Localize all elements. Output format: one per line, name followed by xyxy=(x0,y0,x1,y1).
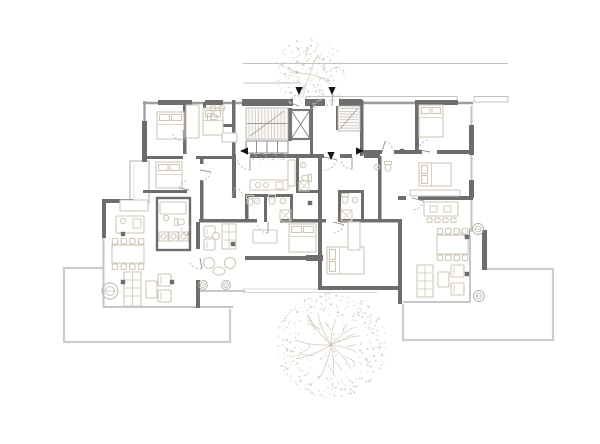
stool xyxy=(435,218,440,223)
chair xyxy=(462,229,468,235)
armchair xyxy=(158,274,171,286)
lounge-chair xyxy=(204,258,215,269)
casework xyxy=(146,281,157,298)
floor-plan xyxy=(0,0,600,444)
column-marker xyxy=(121,280,125,284)
lounge-chair xyxy=(225,258,236,269)
chair xyxy=(437,229,443,235)
column-marker xyxy=(231,242,235,246)
door-swing xyxy=(324,160,337,170)
entry-arrow-left xyxy=(295,87,302,95)
casework xyxy=(120,200,148,211)
chair xyxy=(130,239,136,245)
side-table xyxy=(213,267,225,275)
chair xyxy=(454,229,460,235)
toilet xyxy=(342,194,349,204)
casework xyxy=(348,222,360,250)
appliance xyxy=(159,232,168,241)
casework xyxy=(160,202,186,214)
side-table xyxy=(213,233,220,240)
dining-table xyxy=(112,245,144,263)
terrace-parapet xyxy=(64,268,230,342)
door-swing xyxy=(340,160,352,170)
column-marker xyxy=(308,201,312,205)
floor-plan-page xyxy=(0,0,600,444)
dining-table xyxy=(437,235,468,254)
door-swing xyxy=(412,201,423,210)
chair xyxy=(112,264,118,270)
chair xyxy=(446,255,452,261)
stool xyxy=(427,218,432,223)
casework xyxy=(253,230,277,243)
toilet xyxy=(175,219,185,226)
toilet xyxy=(302,175,312,182)
chair xyxy=(112,239,118,245)
stair-core xyxy=(246,106,360,153)
stool xyxy=(451,218,456,223)
armchair xyxy=(204,239,215,250)
tree-canopy-bottom xyxy=(277,292,387,398)
casework xyxy=(424,202,458,216)
appliance xyxy=(179,232,188,241)
casework xyxy=(222,133,237,142)
entry-arrow-right xyxy=(328,87,335,95)
stool xyxy=(443,218,448,223)
chair xyxy=(138,264,144,270)
apartment-entry-arrow-west xyxy=(240,147,248,154)
casework xyxy=(288,160,295,186)
column-marker xyxy=(400,149,404,153)
site-lines xyxy=(243,64,508,103)
door-swing xyxy=(418,140,427,149)
armchair xyxy=(451,265,464,277)
column-marker xyxy=(465,272,469,276)
chair xyxy=(121,264,127,270)
chair xyxy=(130,264,136,270)
door-swing xyxy=(190,263,202,269)
chair xyxy=(454,255,460,261)
door-swing xyxy=(333,225,344,233)
appliance xyxy=(169,232,178,241)
chair xyxy=(446,229,452,235)
chair xyxy=(437,255,443,261)
toilet xyxy=(385,162,392,172)
canopy-strip xyxy=(474,97,508,103)
armchair xyxy=(158,290,171,302)
casework xyxy=(410,190,460,196)
door-swing xyxy=(237,160,250,170)
chair xyxy=(121,239,127,245)
door-swing xyxy=(385,141,393,150)
armchair xyxy=(451,283,464,295)
column-marker xyxy=(170,280,174,284)
chair xyxy=(138,239,144,245)
column-marker xyxy=(121,232,125,236)
casework xyxy=(186,105,199,138)
bay-window xyxy=(130,161,149,203)
column-marker xyxy=(465,235,469,239)
chair xyxy=(462,255,468,261)
door-swing xyxy=(201,172,211,181)
casework xyxy=(438,272,449,287)
